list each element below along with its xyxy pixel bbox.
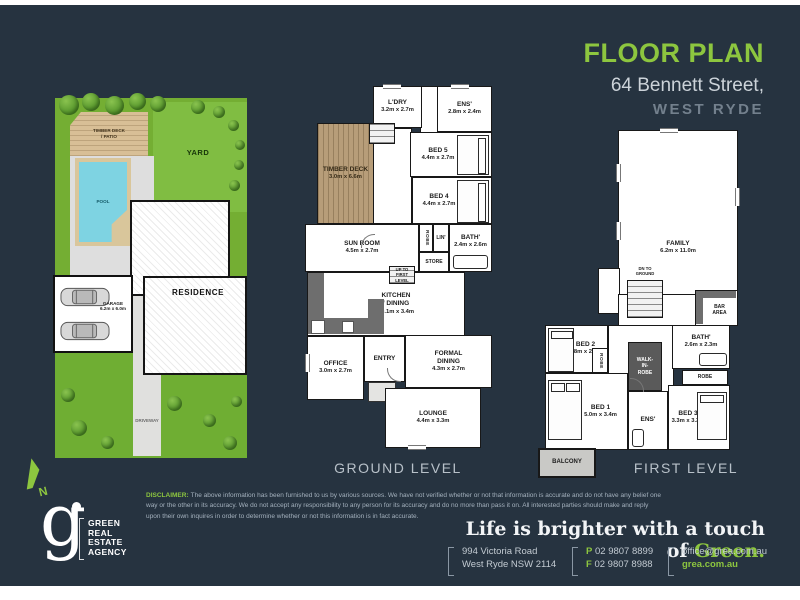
- contact-phone: P 02 9807 8899 F 02 9807 8988: [572, 546, 653, 576]
- room-name: FORMAL DINING: [435, 350, 463, 365]
- kitchen-counter: [368, 299, 384, 323]
- bush-icon: [203, 414, 216, 427]
- room-name: ROBE: [597, 353, 603, 369]
- bush-icon: [71, 420, 87, 436]
- room-robe: ROBE: [419, 224, 433, 252]
- property-address: 64 Bennett Street,: [584, 75, 765, 97]
- room-name: LIN': [436, 235, 445, 241]
- ground-level-plan: L'DRY 3.2m x 2.7m ENS' 2.8m x 2.4m BED 5…: [303, 86, 493, 448]
- phone-number: 02 9807 8899: [595, 546, 653, 557]
- disclaimer-text: The above information has been furnished…: [146, 492, 661, 520]
- room-dims: 4.4m x 2.7m: [422, 155, 455, 162]
- garage-label: GARAGE 6.2m x 6.0m: [95, 301, 131, 311]
- bottom-border: [0, 586, 800, 600]
- room-office: OFFICE 3.0m x 2.7m: [307, 336, 364, 400]
- header: FLOOR PLAN 64 Bennett Street, WEST RYDE: [584, 38, 765, 118]
- room-dims: 2.6m x 2.3m: [685, 342, 718, 349]
- pillow-icon: [700, 395, 724, 403]
- bed-icon: [457, 135, 489, 175]
- room-laundry: L'DRY 3.2m x 2.7m: [373, 86, 422, 128]
- bracket-divider: [572, 547, 578, 576]
- pillow-icon: [478, 183, 486, 222]
- car-icon: [60, 319, 110, 343]
- tree-icon: [82, 93, 100, 111]
- sink-icon: [342, 321, 354, 333]
- window: [616, 164, 621, 182]
- window: [451, 84, 469, 89]
- email-address: office@grea.com.au: [682, 546, 767, 559]
- agency-name-line: AGENCY: [88, 548, 127, 558]
- room-name: BED 1: [591, 404, 610, 411]
- room-name: ROBE: [698, 374, 712, 380]
- room-sun-room: SUN ROOM 4.5m x 2.7m: [305, 224, 419, 272]
- stairs-down-label: DN TO GROUND: [625, 266, 665, 277]
- room-bed5: BED 5 4.4m x 2.7m: [410, 132, 492, 177]
- room-dims: 6.2m x 11.0m: [660, 248, 696, 255]
- room-dims: 3.2m x 2.7m: [381, 107, 414, 114]
- bed-icon: [548, 380, 582, 440]
- tree-icon: [59, 95, 79, 115]
- pillow-icon: [551, 331, 573, 339]
- first-level-plan: FAMILY 6.2m x 11.0m DN TO GROUND BAR ARE…: [538, 130, 790, 478]
- residence-label: RESIDENCE: [155, 288, 241, 297]
- bush-icon: [167, 396, 182, 411]
- address-line1: 994 Victoria Road: [462, 546, 556, 559]
- stair-landing: [598, 268, 620, 314]
- top-border: [0, 0, 800, 5]
- room-dims: 3.0m x 6.6m: [323, 174, 368, 181]
- deck-stairs: [369, 123, 395, 144]
- room-kitchen-dining: KITCHEN / DINING 10.1m x 3.4m: [307, 272, 465, 336]
- bar-counter: [696, 291, 703, 324]
- room-ensuite-ground: ENS' 2.8m x 2.4m: [437, 86, 492, 132]
- room-dims: 3.0m x 2.7m: [319, 368, 352, 375]
- room-store: STORE: [419, 252, 449, 272]
- ground-level-caption: GROUND LEVEL: [303, 460, 493, 476]
- logo-bracket: [79, 518, 84, 560]
- bed-icon: [697, 392, 727, 440]
- room-name: LOUNGE: [419, 410, 447, 417]
- room-name: BED 5: [428, 147, 447, 154]
- room-name: ENS': [457, 101, 472, 108]
- room-bath-ground: BATH' 2.4m x 2.6m: [449, 224, 492, 272]
- room-bath-first: BATH' 2.6m x 2.3m: [672, 325, 730, 369]
- agency-logo-letter: g: [40, 484, 84, 564]
- room-name: FAMILY: [666, 240, 689, 247]
- room-name: STORE: [425, 259, 442, 265]
- fax-label: F: [586, 559, 592, 570]
- pillow-icon: [478, 138, 486, 174]
- room-name: BED 4: [429, 193, 448, 200]
- yard-label: YARD: [173, 148, 223, 157]
- tree-icon: [229, 180, 240, 191]
- room-bar-area: BAR AREA: [695, 290, 738, 326]
- room-name: L'DRY: [388, 99, 407, 106]
- bed-icon: [548, 328, 574, 372]
- stairs-label: UP TO FIRST LEVEL: [390, 267, 414, 283]
- sink-icon: [632, 429, 644, 447]
- tree-icon: [213, 106, 225, 118]
- room-ensuite-first: ENS': [628, 391, 668, 450]
- first-level-caption: FIRST LEVEL: [560, 460, 800, 476]
- bed-icon: [457, 180, 489, 223]
- logo-dot-icon: [72, 502, 81, 511]
- room-name: OFFICE: [324, 360, 348, 367]
- bush-icon: [61, 388, 75, 402]
- tree-icon: [105, 96, 124, 115]
- bush-icon: [101, 436, 114, 449]
- bush-icon: [231, 396, 242, 407]
- room-name: BAR AREA: [712, 304, 726, 317]
- bathtub-icon: [699, 353, 727, 366]
- room-name: BED 3: [678, 410, 697, 417]
- tree-icon: [150, 96, 166, 112]
- property-suburb: WEST RYDE: [584, 101, 765, 118]
- tree-icon: [129, 93, 146, 110]
- bush-icon: [223, 436, 237, 450]
- room-name: ENTRY: [374, 355, 396, 363]
- window: [408, 445, 426, 450]
- contact-online: office@grea.com.au grea.com.au: [668, 546, 767, 576]
- tree-icon: [235, 140, 245, 150]
- pillow-icon: [566, 383, 580, 392]
- website-url: grea.com.au: [682, 559, 767, 572]
- fax-number: 02 9807 8988: [594, 559, 652, 570]
- contact-address: 994 Victoria Road West Ryde NSW 2114: [448, 546, 556, 576]
- room-dims: 4.3m x 2.7m: [432, 366, 465, 373]
- room-name: KITCHEN / DINING: [382, 292, 411, 307]
- room-dims: 4.4m x 2.7m: [423, 201, 456, 208]
- floor-plan-sheet: FLOOR PLAN 64 Bennett Street, WEST RYDE …: [0, 0, 800, 600]
- tree-icon: [234, 160, 244, 170]
- room-bed1: BED 1 5.0m x 3.4m: [545, 373, 628, 450]
- room-formal-dining: FORMAL DINING 4.3m x 2.7m: [405, 335, 492, 388]
- window: [735, 188, 740, 206]
- stairs-down: [627, 280, 663, 318]
- room-bed4: BED 4 4.4m x 2.7m: [412, 177, 492, 224]
- bracket-divider: [668, 547, 674, 576]
- room-name: ROBE: [423, 230, 429, 246]
- room-dims: 4.4m x 3.3m: [417, 418, 450, 425]
- room-name: WALK- IN- ROBE: [637, 357, 653, 376]
- window: [616, 222, 621, 240]
- window: [305, 354, 310, 372]
- bracket-divider: [448, 547, 454, 576]
- stairs-up: UP TO FIRST LEVEL: [389, 266, 415, 284]
- room-name: TIMBER DECK: [323, 166, 368, 173]
- site-plan: TIMBER DECK / PATIO POOL DRIVEWAY RESIDE…: [55, 98, 247, 458]
- pool-label: POOL: [96, 199, 109, 205]
- stove-icon: [311, 320, 325, 334]
- room-dims: 4.5m x 2.7m: [344, 248, 380, 255]
- room-linen: LIN': [433, 224, 449, 252]
- room-name: BATH': [691, 334, 710, 341]
- address-line2: West Ryde NSW 2114: [462, 559, 556, 572]
- room-dims: 5.0m x 3.4m: [584, 412, 617, 419]
- site-timber-deck: TIMBER DECK / PATIO: [70, 112, 148, 156]
- room-lounge: LOUNGE 4.4m x 3.3m: [385, 388, 481, 448]
- tree-icon: [191, 100, 205, 114]
- agency-name: GREEN REAL ESTATE AGENCY: [88, 519, 127, 557]
- room-robe-bed2: ROBE: [592, 348, 608, 373]
- room-dims: 2.4m x 2.6m: [454, 242, 487, 249]
- garage: GARAGE 6.2m x 6.0m: [53, 275, 133, 353]
- room-dims: 2.8m x 2.4m: [448, 109, 481, 116]
- window: [383, 84, 401, 89]
- room-bed3: BED 3 3.3m x 3.3m: [668, 385, 730, 450]
- room-name: ENS': [641, 416, 656, 424]
- page-title: FLOOR PLAN: [584, 38, 765, 69]
- bathtub-icon: [453, 255, 488, 269]
- disclaimer-label: DISCLAIMER:: [146, 492, 189, 499]
- window: [660, 128, 678, 133]
- room-name: BATH': [461, 234, 480, 241]
- tree-icon: [228, 120, 239, 131]
- room-robe-front: ROBE: [682, 370, 728, 385]
- room-timber-deck: TIMBER DECK 3.0m x 6.6m: [317, 123, 374, 224]
- pillow-icon: [551, 383, 565, 392]
- phone-label: P: [586, 546, 592, 557]
- site-timber-deck-label: TIMBER DECK / PATIO: [93, 128, 125, 140]
- driveway-label: DRIVEWAY: [133, 418, 161, 423]
- yard-area: [153, 102, 247, 212]
